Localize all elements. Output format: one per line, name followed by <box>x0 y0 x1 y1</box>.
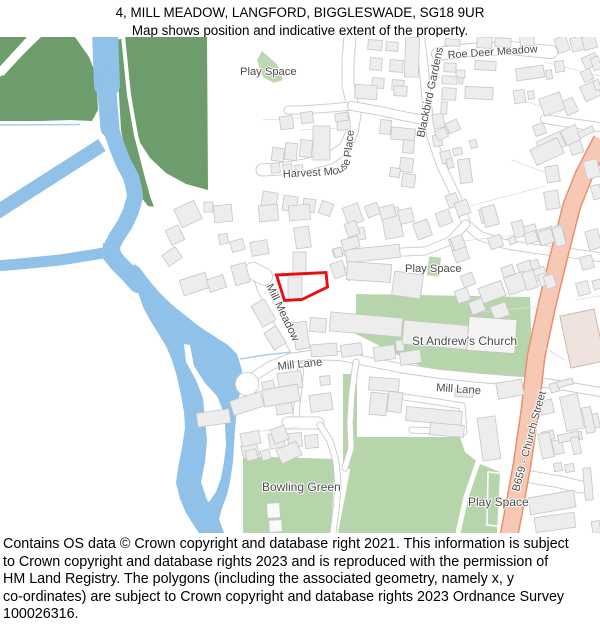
svg-text:Play Space: Play Space <box>468 495 529 509</box>
svg-text:Play Space: Play Space <box>405 263 462 275</box>
svg-text:Bowling Green: Bowling Green <box>262 480 341 494</box>
svg-text:Play Space: Play Space <box>240 66 297 78</box>
svg-text:St Andrew's Church: St Andrew's Church <box>412 334 517 348</box>
